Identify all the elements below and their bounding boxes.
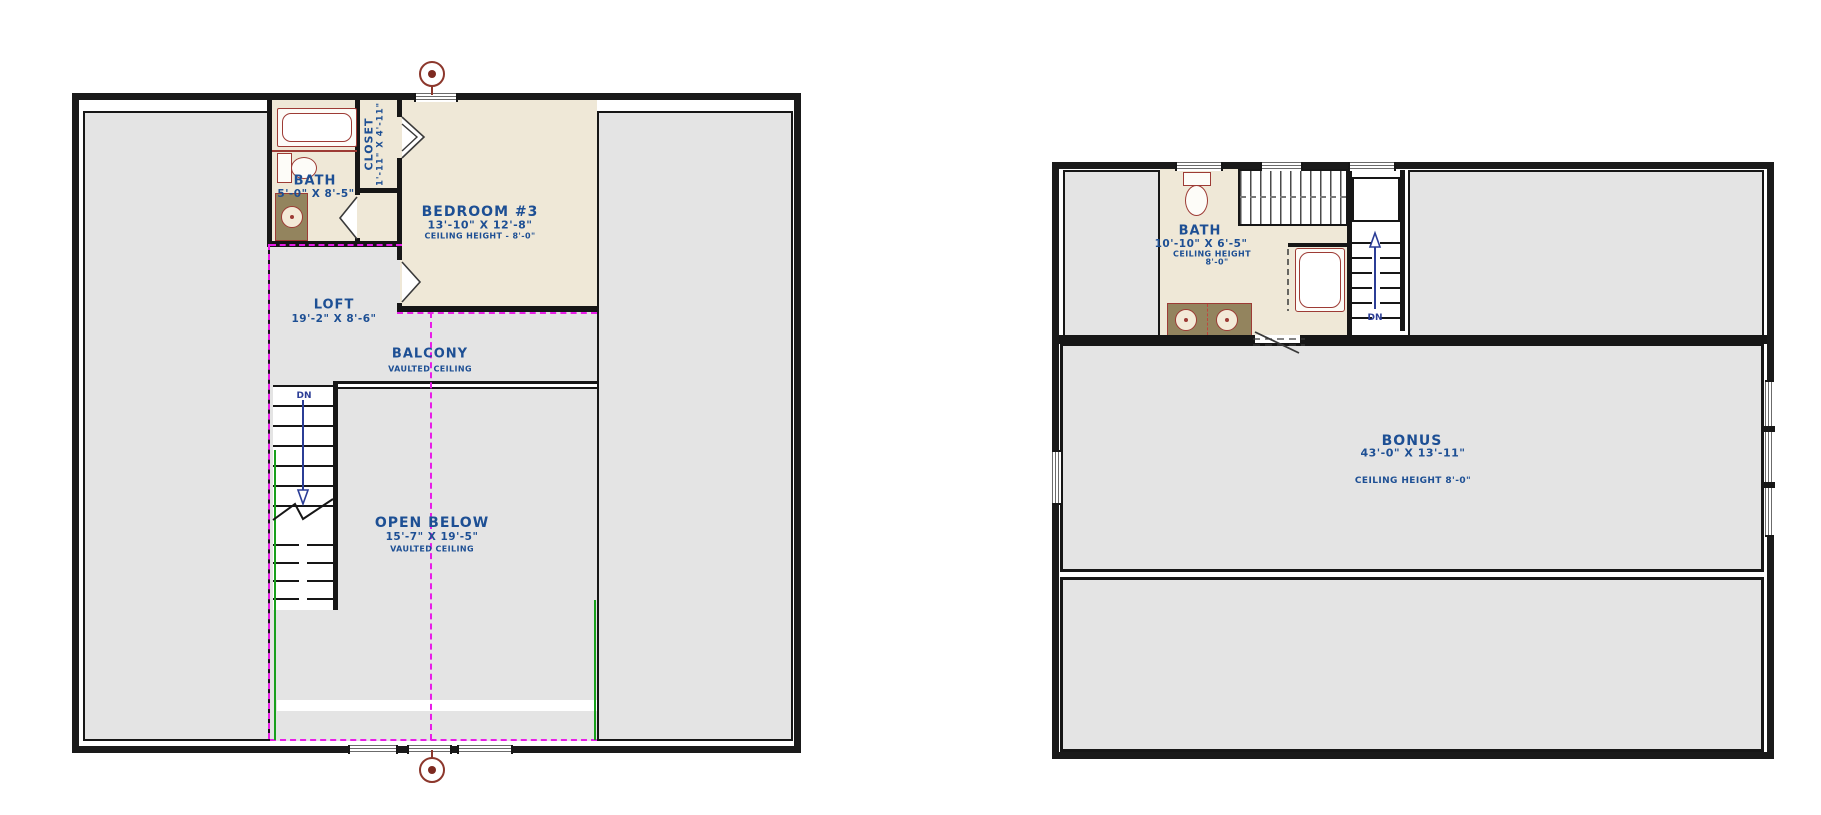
bath-left-wall <box>267 100 272 246</box>
rear-room <box>1060 577 1764 752</box>
attic-room-left <box>83 111 270 741</box>
stairwell-right-wall <box>1400 170 1405 331</box>
stairwell-right-wall <box>333 381 338 610</box>
balcony-label: BALCONY <box>392 347 468 362</box>
bottom-window-1 <box>348 745 398 754</box>
bedroom-dims: 13'-10" X 12'-8" <box>427 219 532 232</box>
closet-bottom-wall <box>355 188 402 193</box>
magenta-line-bottom <box>270 739 597 741</box>
bottom-window-2 <box>407 745 452 754</box>
top-window-2 <box>1260 162 1303 171</box>
bath-label: BATH <box>1179 224 1222 239</box>
closet-rod-dashed-line <box>1240 196 1346 198</box>
bathtub-inner <box>1299 252 1341 308</box>
closet-label: CLOSET <box>363 102 376 186</box>
open-below-label: OPEN BELOW <box>375 515 489 531</box>
attic-room-top-left <box>1063 170 1160 337</box>
right-window-mullion-1 <box>1764 426 1775 432</box>
toilet-tank-icon <box>1183 172 1211 186</box>
bath-ceiling-note-2: 8'-0" <box>1205 258 1228 267</box>
balcony-rail-wall <box>333 381 597 389</box>
bedroom-top-opening-window <box>414 93 458 102</box>
sink-drain-dot <box>290 215 294 219</box>
stairs-dn-label: DN <box>1367 313 1382 323</box>
closet-label-group: CLOSET 1'-11" X 4'-11" <box>363 102 386 186</box>
bedroom-ceiling-note: CEILING HEIGHT - 8'-0" <box>424 232 535 241</box>
loft-label: LOFT <box>314 298 355 313</box>
loft-dims: 19'-2" X 8'-6" <box>291 313 376 325</box>
open-below-note: VAULTED CEILING <box>390 545 474 554</box>
attic-room-top-right <box>1408 170 1764 337</box>
right-window-mullion-2 <box>1764 482 1775 488</box>
light-fixture-dot-top <box>428 70 436 78</box>
floor-break-band <box>277 700 597 711</box>
bathtub-divider-line <box>272 150 357 152</box>
toilet-bowl-icon <box>1185 185 1208 216</box>
top-window-3 <box>1348 162 1396 171</box>
left-wall-window <box>1052 450 1061 505</box>
closet-dims: 1'-11" X 4'-11" <box>376 102 386 186</box>
stair-treads-dashed <box>273 528 333 600</box>
stair-treads-upper <box>273 385 333 507</box>
light-fixture-dot-bottom <box>428 766 436 774</box>
green-line-left <box>274 450 276 740</box>
magenta-line-balcony-top <box>397 312 597 314</box>
magenta-line-left <box>268 244 270 739</box>
stairs-dn-label: DN <box>296 391 311 401</box>
attic-room-right <box>597 111 793 741</box>
vanity-divider-dashed <box>1207 304 1208 335</box>
sink-drain-dot-left <box>1184 318 1188 322</box>
right-wall-window <box>1765 380 1774 537</box>
bath-dims: 5'-0" X 8'-5" <box>277 188 354 200</box>
green-line-right <box>594 600 596 740</box>
stair-landing <box>1352 177 1400 222</box>
bath-label: BATH <box>294 174 337 189</box>
balcony-note: VAULTED CEILING <box>388 365 472 374</box>
bonus-floor-plan: BATH 10'-10" X 6'-5" CEILING HEIGHT 8'-0… <box>1052 162 1774 759</box>
light-fixture-stem-top <box>431 86 433 95</box>
bonus-dims: 43'-0" X 13'-11" <box>1360 447 1465 460</box>
bath-dims: 10'-10" X 6'-5" <box>1155 238 1248 250</box>
top-window-1 <box>1175 162 1223 171</box>
floor-plan-canvas: BATH 5'-0" X 8'-5" CLOSET 1'-11" X 4'-11… <box>0 0 1821 815</box>
open-below-dims: 15'-7" X 19'-5" <box>386 531 479 543</box>
toilet-tank-icon <box>277 153 292 183</box>
tub-alcove-wall <box>1288 243 1352 247</box>
bedroom-left-wall-a <box>397 100 402 117</box>
bottom-window-3 <box>457 745 513 754</box>
bathtub-inner <box>282 113 352 142</box>
magenta-line-loft-top <box>270 244 402 246</box>
sink-drain-dot-right <box>1225 318 1229 322</box>
upper-floor-plan: BATH 5'-0" X 8'-5" CLOSET 1'-11" X 4'-11… <box>72 93 801 753</box>
bonus-ceiling-note: CEILING HEIGHT 8'-0" <box>1355 476 1471 486</box>
